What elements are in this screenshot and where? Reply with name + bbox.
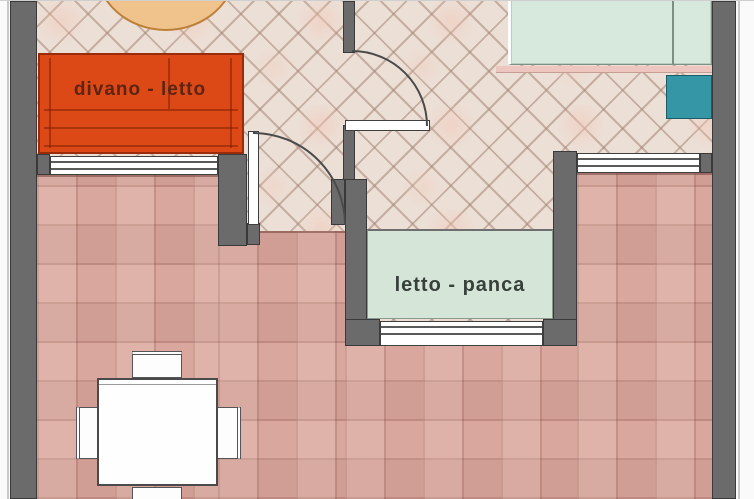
chair-top	[132, 351, 182, 378]
sofa-seat-line-2	[44, 127, 238, 129]
teal-storage-box	[666, 75, 712, 119]
bed-section-divider	[672, 0, 674, 64]
bed-bench: letto - panca	[367, 229, 553, 319]
floor-plan: divano - letto letto - panca	[0, 0, 754, 499]
sofa-seat-line-1	[44, 109, 238, 111]
sofa-bed: divano - letto	[38, 53, 244, 154]
plan-border-left	[7, 1, 9, 499]
bed-foot-strip	[496, 66, 712, 73]
sofa-armrest-right-line	[230, 58, 232, 148]
door-arc-top	[352, 51, 427, 126]
chair-bottom	[132, 487, 182, 499]
bed	[508, 0, 712, 65]
sofa-front-edge-line	[44, 145, 238, 147]
plan-border-right	[738, 1, 740, 499]
bench-label: letto - panca	[395, 274, 526, 297]
dining-table-edge-line	[99, 384, 216, 385]
sofa-label: divano - letto	[50, 79, 230, 101]
dining-table	[97, 378, 218, 486]
door-arc-hall	[253, 133, 345, 225]
chair-right	[216, 407, 241, 459]
sofa-armrest-left-line	[49, 58, 51, 148]
